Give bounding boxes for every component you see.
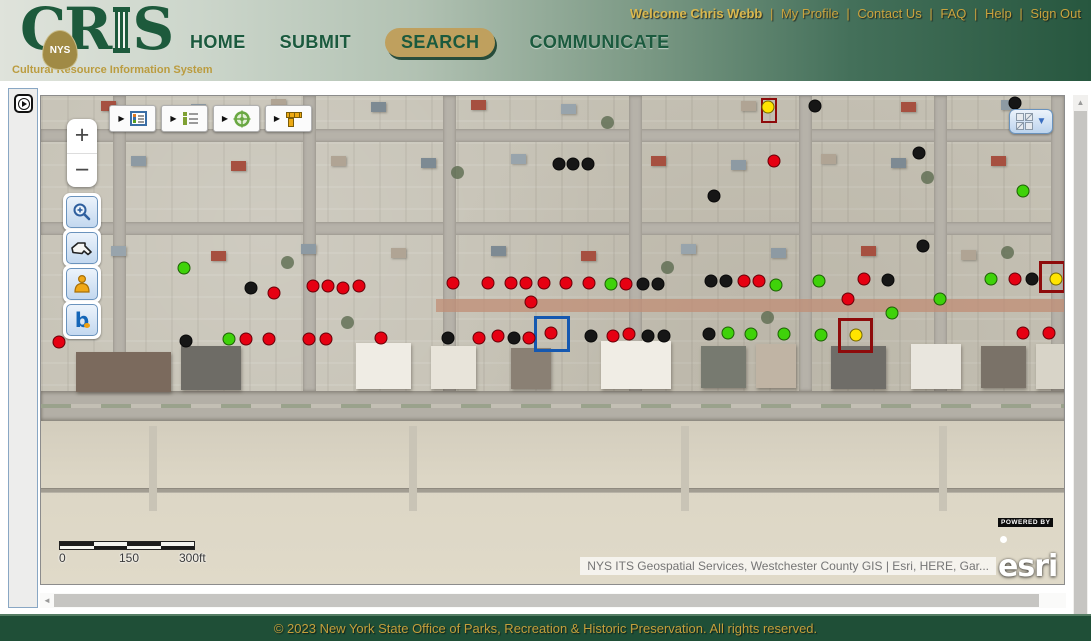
map-marker-red[interactable] xyxy=(1009,273,1022,286)
map-marker-black[interactable] xyxy=(917,240,930,253)
map-marker-green[interactable] xyxy=(722,327,735,340)
map-marker-black[interactable] xyxy=(913,147,926,160)
map-marker-red[interactable] xyxy=(525,296,538,309)
map-marker-red[interactable] xyxy=(607,330,620,343)
map-marker-green[interactable] xyxy=(778,328,791,341)
scale-label-300ft: 300ft xyxy=(179,551,206,565)
layer-list-tool-button[interactable]: ▶ xyxy=(109,105,156,132)
locate-tool-button[interactable]: ▶ xyxy=(213,105,260,132)
basemap-grid-icon xyxy=(1016,113,1033,130)
zoom-out-button[interactable]: − xyxy=(67,154,97,188)
bing-dot-icon xyxy=(84,323,90,328)
link-sign-out[interactable]: Sign Out xyxy=(1030,6,1081,21)
separator: | xyxy=(842,6,853,21)
measure-tool-button[interactable]: ▶ xyxy=(265,105,312,132)
expander-icon: ▶ xyxy=(274,114,280,123)
vertical-scrollbar[interactable]: ▲ ▼ xyxy=(1073,95,1088,641)
map-marker-black[interactable] xyxy=(567,158,580,171)
map-marker-red[interactable] xyxy=(520,277,533,290)
map-marker-red[interactable] xyxy=(492,330,505,343)
nys-label: NYS xyxy=(50,45,71,56)
map-toolbar: ▶ ▶ ▶ xyxy=(109,105,312,132)
map-marker-black[interactable] xyxy=(642,330,655,343)
map-marker-black[interactable] xyxy=(705,275,718,288)
column-icon xyxy=(113,7,130,53)
cris-logo[interactable]: CR S NYS Cultural Resource Information S… xyxy=(8,2,198,80)
map-marker-red[interactable] xyxy=(858,273,871,286)
expand-panel-button[interactable] xyxy=(14,94,33,113)
map-marker-black[interactable] xyxy=(585,330,598,343)
link-contact-us[interactable]: Contact Us xyxy=(857,6,921,21)
map-marker-green[interactable] xyxy=(1017,185,1030,198)
map-marker-black[interactable] xyxy=(582,158,595,171)
map-marker-red[interactable] xyxy=(620,278,633,291)
nav-submit[interactable]: SUBMIT xyxy=(280,32,351,53)
map-marker-black[interactable] xyxy=(809,100,822,113)
map-marker-green[interactable] xyxy=(886,307,899,320)
map-marker-red[interactable] xyxy=(320,333,333,346)
zoom-extent-button[interactable] xyxy=(63,193,101,231)
map-marker-red[interactable] xyxy=(473,332,486,345)
map-marker-red[interactable] xyxy=(268,287,281,300)
map-marker-green[interactable] xyxy=(605,278,618,291)
ruler-icon xyxy=(285,110,303,128)
zoom-control: + − xyxy=(67,119,97,187)
map-marker-red[interactable] xyxy=(263,333,276,346)
map-attribution: NYS ITS Geospatial Services, Westchester… xyxy=(580,557,996,575)
scroll-up-arrow[interactable]: ▲ xyxy=(1073,95,1088,110)
separator: | xyxy=(970,6,981,21)
nav-communicate[interactable]: COMMUNICATE xyxy=(529,32,669,53)
map-marker-red[interactable] xyxy=(447,277,460,290)
expander-icon: ▶ xyxy=(222,114,228,123)
new-york-state-icon xyxy=(71,240,93,257)
map-marker-yellow[interactable] xyxy=(1050,273,1063,286)
horizontal-scrollbar[interactable]: ◄ xyxy=(40,593,1066,608)
map-marker-red[interactable] xyxy=(240,333,253,346)
logo-text-s: S xyxy=(132,0,172,60)
chevron-down-icon: ▼ xyxy=(1037,116,1047,127)
link-my-profile[interactable]: My Profile xyxy=(781,6,839,21)
legend-tool-button[interactable]: ▶ xyxy=(161,105,208,132)
nav-home[interactable]: HOME xyxy=(190,32,246,53)
scale-label-150: 150 xyxy=(119,551,139,565)
zoom-in-button[interactable]: + xyxy=(67,119,97,154)
map-marker-green[interactable] xyxy=(745,328,758,341)
street-view-button[interactable] xyxy=(63,265,101,303)
map-marker-red[interactable] xyxy=(523,332,536,345)
header: CR S NYS Cultural Resource Information S… xyxy=(0,0,1091,81)
pegman-person-icon xyxy=(72,274,92,294)
basemap-gallery-button[interactable]: ▼ xyxy=(1009,109,1053,134)
layer-list-icon xyxy=(130,111,147,126)
map-marker-green[interactable] xyxy=(223,333,236,346)
map-marker-green[interactable] xyxy=(813,275,826,288)
separator: | xyxy=(1015,6,1026,21)
map-marker-red[interactable] xyxy=(768,155,781,168)
map-marker-black[interactable] xyxy=(245,282,258,295)
nav-search[interactable]: SEARCH xyxy=(385,28,495,57)
map-marker-green[interactable] xyxy=(770,279,783,292)
scale-bar-segments xyxy=(59,541,195,550)
map-marker-red[interactable] xyxy=(307,280,320,293)
map-marker-red[interactable] xyxy=(1043,327,1056,340)
map-marker-red[interactable] xyxy=(353,280,366,293)
map-marker-red[interactable] xyxy=(560,277,573,290)
map-marker-black[interactable] xyxy=(508,332,521,345)
cris-application: CR S NYS Cultural Resource Information S… xyxy=(0,0,1091,641)
map-marker-black[interactable] xyxy=(708,190,721,203)
expander-icon: ▶ xyxy=(118,114,124,123)
map-marker-red[interactable] xyxy=(538,277,551,290)
link-faq[interactable]: FAQ xyxy=(940,6,966,21)
horizontal-scroll-thumb[interactable] xyxy=(54,594,1039,607)
footer: © 2023 New York State Office of Parks, R… xyxy=(0,614,1091,641)
vertical-scroll-thumb[interactable] xyxy=(1074,111,1087,641)
link-help[interactable]: Help xyxy=(985,6,1012,21)
map-marker-red[interactable] xyxy=(53,336,66,349)
map-marker-black[interactable] xyxy=(882,274,895,287)
map-marker-black[interactable] xyxy=(658,330,671,343)
legend-list-icon xyxy=(182,111,199,126)
map-marker-red[interactable] xyxy=(545,327,558,340)
magnifier-plus-icon xyxy=(72,202,92,222)
map-marker-green[interactable] xyxy=(985,273,998,286)
map-marker-red[interactable] xyxy=(753,275,766,288)
map-marker-green[interactable] xyxy=(934,293,947,306)
map-marker-red[interactable] xyxy=(505,277,518,290)
content-area: ▶ ▶ ▶ xyxy=(0,81,1091,614)
play-icon xyxy=(22,101,27,107)
map-marker-red[interactable] xyxy=(482,277,495,290)
bing-maps-button[interactable]: b xyxy=(63,301,101,339)
esri-dot xyxy=(1000,536,1007,543)
map-marker-black[interactable] xyxy=(652,278,665,291)
map-canvas[interactable]: ▶ ▶ ▶ xyxy=(40,95,1065,585)
map-marker-red[interactable] xyxy=(583,277,596,290)
target-globe-icon xyxy=(233,110,251,128)
map-marker-black[interactable] xyxy=(703,328,716,341)
scale-bar: 0 150 300ft xyxy=(59,541,219,565)
collapsed-side-panel xyxy=(8,88,38,608)
map-marker-red[interactable] xyxy=(623,328,636,341)
powered-by-label: POWERED BY xyxy=(998,518,1053,527)
map-marker-black[interactable] xyxy=(180,335,193,348)
map-marker-red[interactable] xyxy=(375,332,388,345)
expander-icon: ▶ xyxy=(170,114,176,123)
map-marker-yellow[interactable] xyxy=(850,329,863,342)
map-marker-black[interactable] xyxy=(1009,97,1022,110)
user-bar: Welcome Chris Webb | My Profile | Contac… xyxy=(630,6,1081,21)
map-marker-red[interactable] xyxy=(303,333,316,346)
map-marker-green[interactable] xyxy=(178,262,191,275)
map-marker-black[interactable] xyxy=(553,158,566,171)
zoom-to-new-york-button[interactable] xyxy=(63,229,101,267)
esri-wordmark: esri xyxy=(998,554,1062,580)
map-marker-red[interactable] xyxy=(322,280,335,293)
scroll-left-arrow[interactable]: ◄ xyxy=(40,596,54,605)
map-marker-yellow[interactable] xyxy=(762,101,775,114)
map-marker-black[interactable] xyxy=(1026,273,1039,286)
scale-label-0: 0 xyxy=(59,551,66,565)
copyright-text: © 2023 New York State Office of Parks, R… xyxy=(274,621,817,636)
separator: | xyxy=(766,6,777,21)
map-marker-black[interactable] xyxy=(720,275,733,288)
esri-logo: POWERED BY esri xyxy=(998,518,1062,580)
map-marker-green[interactable] xyxy=(815,329,828,342)
map-side-tools: b xyxy=(63,193,101,336)
map-marker-black[interactable] xyxy=(637,278,650,291)
map-marker-red[interactable] xyxy=(842,293,855,306)
welcome-text: Welcome Chris Webb xyxy=(630,6,762,21)
main-nav: HOME SUBMIT SEARCH COMMUNICATE xyxy=(190,28,670,57)
map-marker-red[interactable] xyxy=(1017,327,1030,340)
map-marker-red[interactable] xyxy=(337,282,350,295)
map-marker-red[interactable] xyxy=(738,275,751,288)
separator: | xyxy=(925,6,936,21)
map-marker-black[interactable] xyxy=(442,332,455,345)
